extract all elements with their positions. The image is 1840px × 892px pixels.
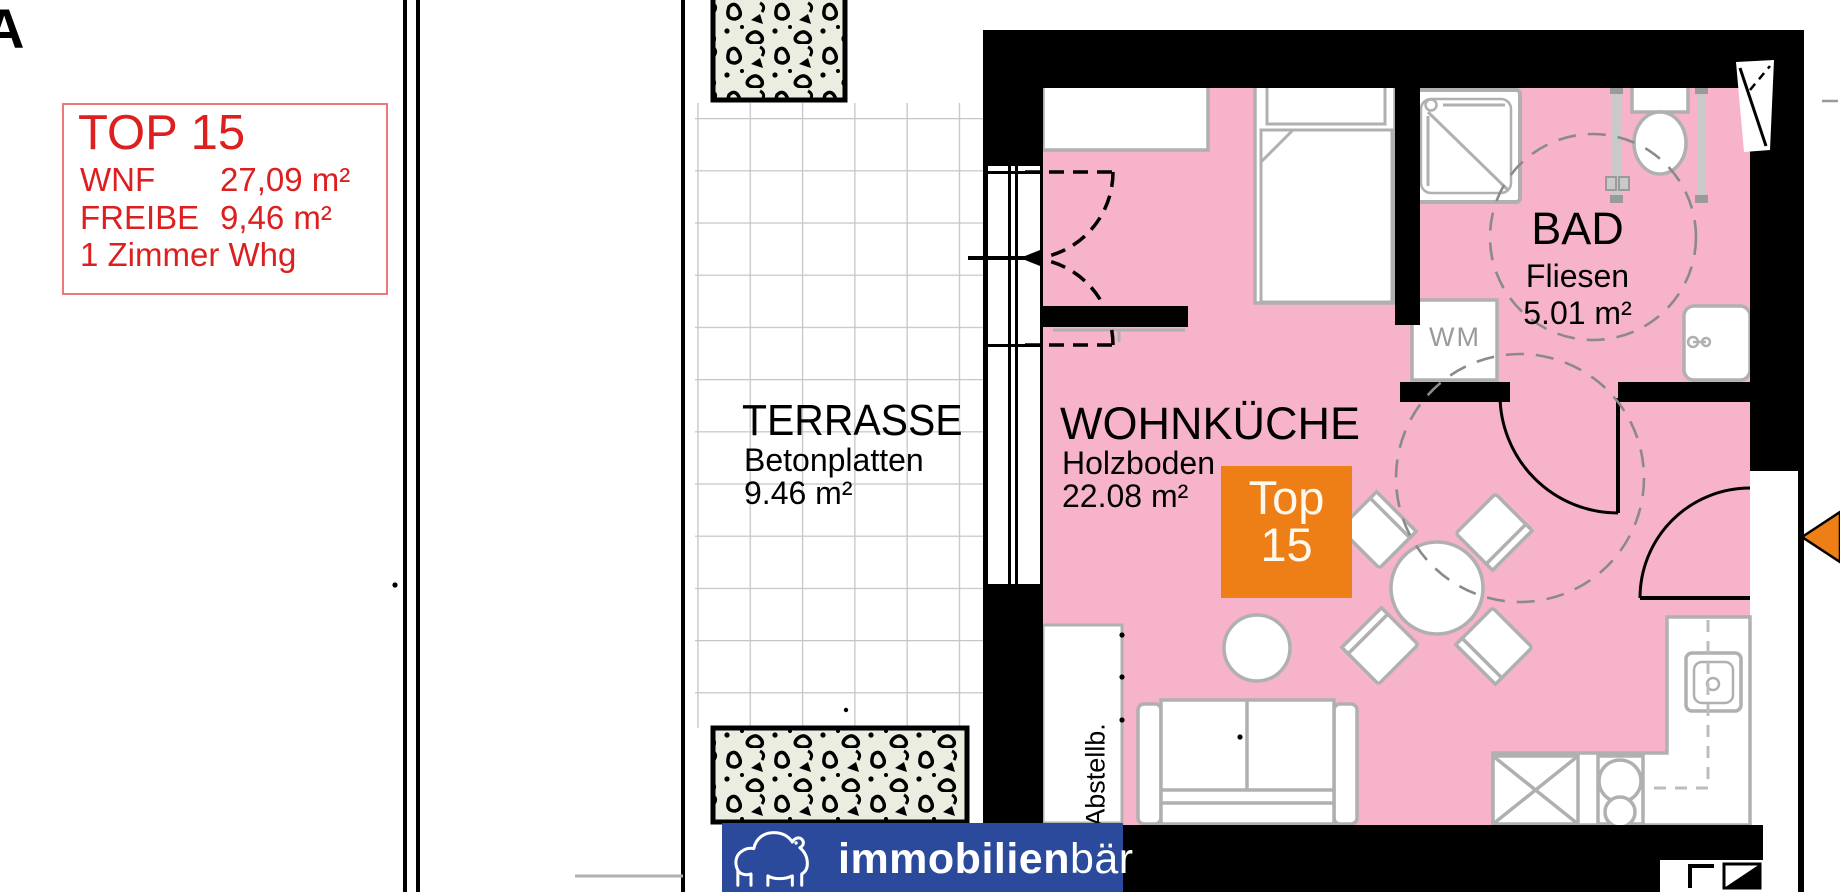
area-row-wnf: WNF 27,09 m² bbox=[80, 161, 350, 199]
living-name: WOHNKÜCHE bbox=[1060, 400, 1360, 447]
entrance-threshold bbox=[1690, 864, 1760, 888]
bath-floor: Fliesen bbox=[1470, 258, 1685, 295]
unit-type: 1 Zimmer Whg bbox=[80, 236, 296, 274]
toilet bbox=[1632, 86, 1688, 174]
bed-niche-wall bbox=[1043, 306, 1188, 327]
bath-west-wall bbox=[1395, 30, 1420, 325]
unit-badge: Top 15 bbox=[1221, 466, 1352, 598]
north-wall bbox=[985, 30, 1798, 88]
nw-corner-wall bbox=[983, 30, 1043, 163]
terrace-door-frame bbox=[983, 163, 1043, 587]
bath-south-wall-a bbox=[1400, 382, 1510, 402]
entrance-arrow-icon bbox=[1802, 512, 1840, 562]
bath-label-block: BAD Fliesen 5.01 m² bbox=[1470, 203, 1685, 332]
terrace-area: 9.46 m² bbox=[744, 477, 852, 511]
hedge-top bbox=[713, 0, 845, 100]
stove bbox=[1598, 756, 1643, 827]
storage-label: Abstellb. bbox=[1081, 723, 1112, 827]
east-outer-line bbox=[1798, 30, 1804, 892]
unit-badge-line2: 15 bbox=[1221, 521, 1352, 568]
unit-info-box: TOP 15 WNF 27,09 m² FREIBE 9,46 m² 1 Zim… bbox=[62, 103, 388, 295]
sw-corner-wall bbox=[983, 587, 1043, 825]
logo-text-light: bär bbox=[1070, 835, 1134, 883]
coffee-table bbox=[1224, 615, 1290, 681]
kitchen-cabinet bbox=[1493, 756, 1578, 824]
dining-table bbox=[1391, 542, 1483, 634]
section-line-2 bbox=[416, 0, 420, 892]
washbasin bbox=[1684, 306, 1750, 380]
unit-badge-line1: Top bbox=[1221, 474, 1352, 521]
section-line-1 bbox=[403, 0, 407, 892]
bed bbox=[1255, 70, 1395, 303]
floorplan-page: A TOP 15 WNF 27,09 m² FREIBE 9,46 m² 1 Z… bbox=[0, 0, 1840, 892]
area-row-freibe: FREIBE 9,46 m² bbox=[80, 199, 350, 237]
sofa bbox=[1138, 700, 1357, 824]
bath-name: BAD bbox=[1470, 203, 1685, 255]
washing-machine-label: WM bbox=[1412, 322, 1498, 353]
hedge-bottom bbox=[713, 728, 967, 822]
unit-title: TOP 15 bbox=[78, 105, 245, 161]
living-floor: Holzboden bbox=[1062, 447, 1215, 481]
bear-icon bbox=[730, 827, 834, 889]
logo-wordmark: immobilienbär bbox=[838, 835, 1134, 884]
bath-south-wall-b bbox=[1618, 382, 1750, 402]
logo-banner: immobilienbär bbox=[722, 823, 1123, 892]
corner-letter: A bbox=[0, 0, 24, 61]
logo-text-bold: immobilien bbox=[838, 835, 1070, 883]
terrace-name: TERRASSE bbox=[742, 398, 963, 444]
plot-boundary-line bbox=[681, 0, 685, 892]
unit-area-rows: WNF 27,09 m² FREIBE 9,46 m² bbox=[80, 161, 350, 238]
terrace-floor: Betonplatten bbox=[744, 444, 924, 478]
south-wall-entry bbox=[1660, 825, 1763, 860]
kitchen-sink bbox=[1686, 653, 1741, 711]
living-area: 22.08 m² bbox=[1062, 480, 1188, 514]
bath-area: 5.01 m² bbox=[1470, 295, 1685, 332]
entry-recess-top bbox=[1750, 465, 1798, 471]
